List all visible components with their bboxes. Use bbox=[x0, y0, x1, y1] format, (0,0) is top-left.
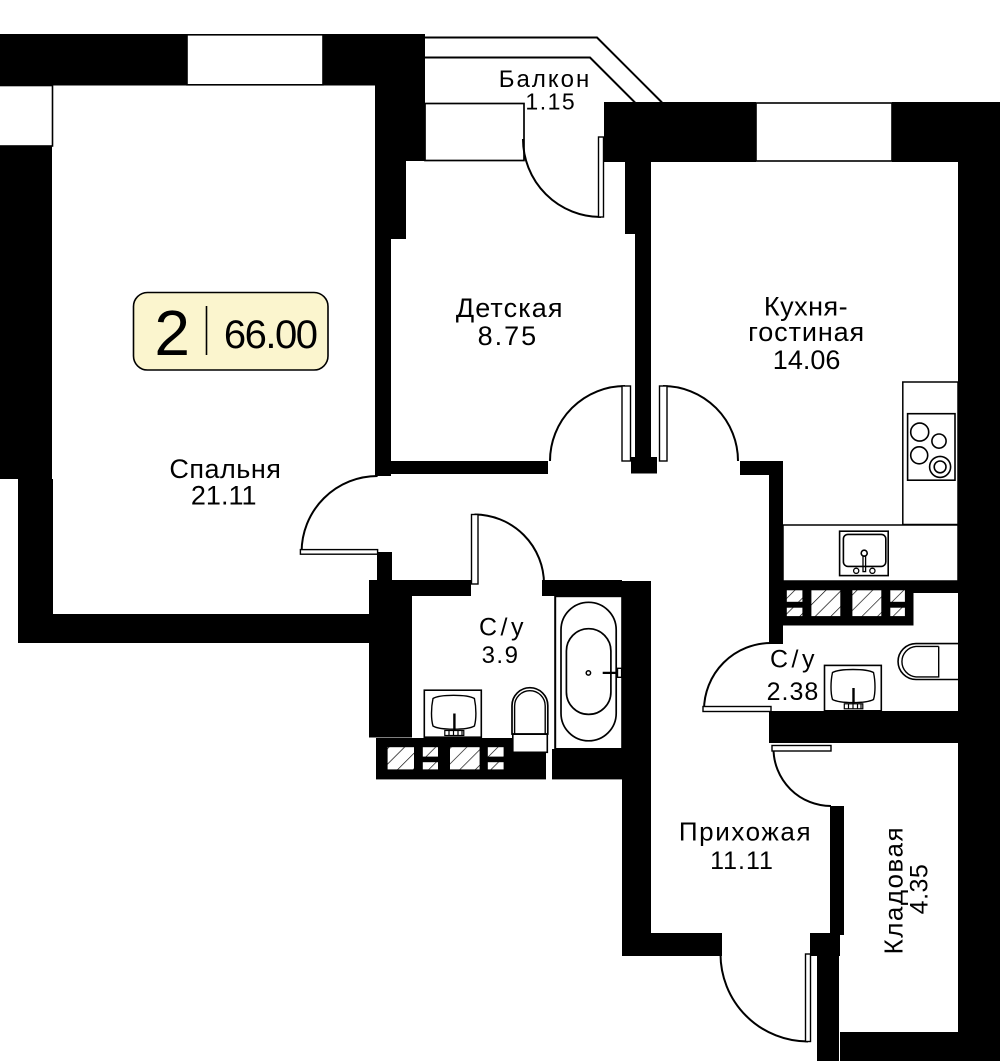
svg-text:66.00: 66.00 bbox=[224, 313, 317, 357]
svg-text:4.35: 4.35 bbox=[906, 864, 934, 915]
svg-text:гостиная: гостиная bbox=[748, 317, 865, 347]
svg-text:1.15: 1.15 bbox=[525, 89, 576, 115]
svg-text:2.38: 2.38 bbox=[767, 678, 820, 706]
svg-text:3.9: 3.9 bbox=[482, 642, 520, 669]
svg-text:2: 2 bbox=[154, 297, 190, 369]
svg-text:Прихожая: Прихожая bbox=[679, 817, 812, 847]
svg-text:11.11: 11.11 bbox=[710, 847, 774, 875]
svg-text:С/у: С/у bbox=[479, 614, 527, 642]
svg-text:21.11: 21.11 bbox=[191, 481, 257, 511]
svg-text:14.06: 14.06 bbox=[773, 345, 841, 375]
svg-text:С/у: С/у bbox=[770, 646, 818, 674]
svg-text:8.75: 8.75 bbox=[478, 321, 539, 351]
svg-text:Детская: Детская bbox=[456, 293, 564, 323]
svg-text:Спальня: Спальня bbox=[169, 454, 281, 484]
svg-text:Кладовая: Кладовая bbox=[879, 826, 909, 954]
